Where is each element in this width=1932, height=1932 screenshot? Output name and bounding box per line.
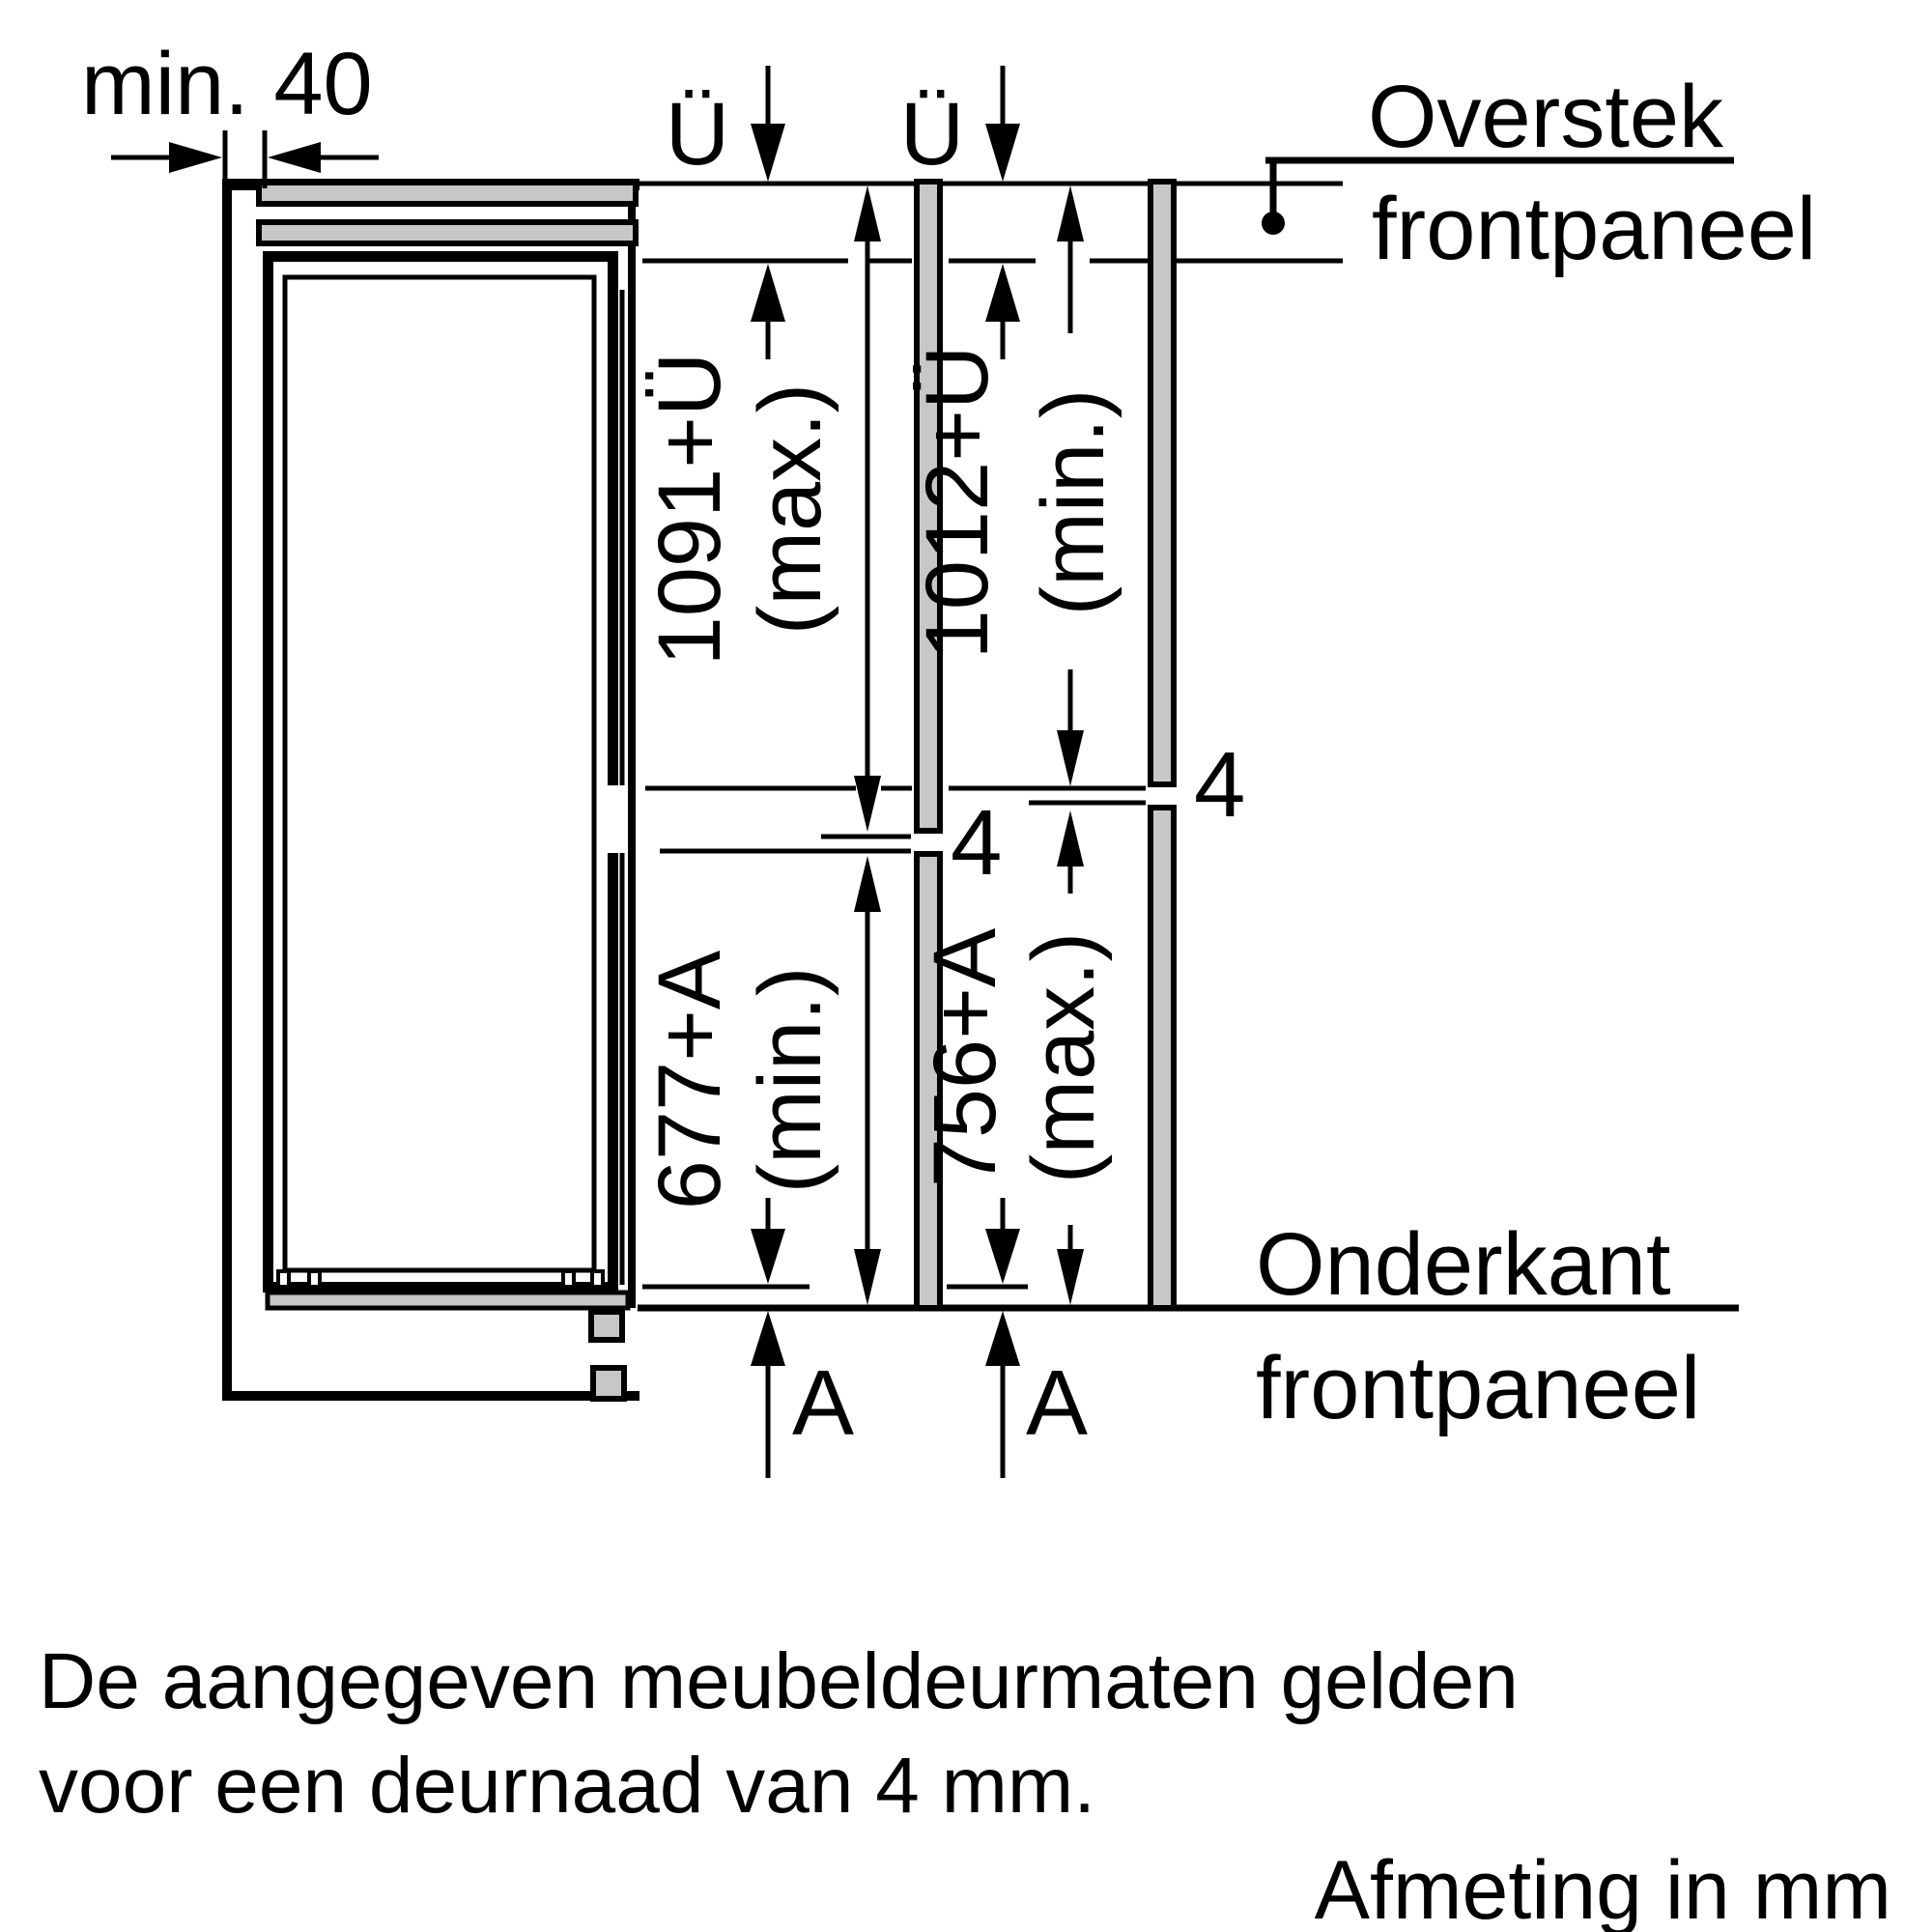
bottom-offset-symbol-2: A xyxy=(1026,1351,1088,1455)
arrow-down-icon xyxy=(854,1249,881,1305)
installation-diagram: min. 40 Ü Ü 1091+Ü (max.) 1012+Ü (min.) xyxy=(0,0,1932,1932)
arrow-up-icon xyxy=(985,1311,1020,1366)
vent-strip-lower xyxy=(259,222,636,243)
dimension-upper-left-column: 1091+Ü (max.) xyxy=(640,185,881,832)
dim-lower-right-qualifier: (max.) xyxy=(1014,932,1113,1184)
min-40-label: min. 40 xyxy=(81,35,373,133)
gap-label-right: 4 xyxy=(1194,733,1245,837)
dim-lower-right-value: 756+A xyxy=(916,927,1014,1187)
arrow-down-icon xyxy=(985,124,1020,182)
appliance-roller-mark xyxy=(592,1271,603,1287)
dim-upper-right-value: 1012+Ü xyxy=(908,346,1007,660)
dimension-overhang-left: Ü xyxy=(666,66,785,359)
appliance-foot-upper xyxy=(591,1312,622,1340)
appliance-roller-mark xyxy=(309,1271,320,1287)
appliance-roller-mark xyxy=(278,1271,289,1287)
arrow-up-icon xyxy=(751,264,785,322)
arrow-up-icon xyxy=(854,185,881,241)
arrow-up-icon xyxy=(1057,185,1084,241)
appliance-roller-mark xyxy=(563,1271,574,1287)
dim-lower-left-value: 677+A xyxy=(640,950,739,1209)
dim-upper-left-qualifier: (max.) xyxy=(741,384,839,636)
onderkant-line1: Onderkant xyxy=(1256,1215,1671,1314)
footnotes: De aangegeven meubeldeurmaten gelden voo… xyxy=(39,1637,1891,1932)
cabinet-floor xyxy=(222,1391,639,1401)
arrow-left-icon xyxy=(268,142,321,173)
appliance-foot-lower xyxy=(593,1368,624,1399)
appliance-body xyxy=(268,257,628,1400)
note-line1: De aangegeven meubeldeurmaten gelden xyxy=(39,1637,1519,1725)
appliance-outer-case xyxy=(269,257,613,1288)
arrow-down-icon xyxy=(854,776,881,832)
units-note: Afmeting in mm xyxy=(1315,1844,1891,1932)
dimension-min-40: min. 40 xyxy=(81,35,379,188)
arrow-down-icon xyxy=(751,1229,785,1284)
arrow-up-icon xyxy=(985,264,1020,322)
bottom-offset-symbol-1: A xyxy=(792,1351,854,1455)
leader-dot-icon xyxy=(1262,212,1285,235)
appliance-door-split-gap xyxy=(601,785,626,853)
dimension-bottom-offset-left: A xyxy=(751,1198,854,1478)
installation-diagram-page: min. 40 Ü Ü 1091+Ü (max.) 1012+Ü (min.) xyxy=(0,0,1932,1932)
arrow-down-icon xyxy=(985,1229,1020,1284)
dim-upper-right-qualifier: (min.) xyxy=(1024,388,1122,615)
arrow-down-icon xyxy=(1057,1249,1084,1305)
arrow-up-icon xyxy=(854,856,881,912)
arrow-down-icon xyxy=(751,124,785,182)
arrow-up-icon xyxy=(1057,810,1084,867)
arrow-right-icon xyxy=(169,142,222,173)
gap-label-left: 4 xyxy=(951,791,1002,895)
cabinet-left-wall xyxy=(222,182,232,1401)
overhang-symbol-1: Ü xyxy=(666,85,729,184)
overstek-line2: frontpaneel xyxy=(1372,180,1816,278)
label-overstek-frontpaneel: Overstek frontpaneel xyxy=(1262,68,1816,278)
onderkant-line2: frontpaneel xyxy=(1256,1339,1700,1437)
overstek-line1: Overstek xyxy=(1368,68,1724,166)
appliance-plinth xyxy=(268,1293,628,1308)
vent-strip-upper xyxy=(259,183,636,204)
cabinet-front-edge xyxy=(628,180,636,1308)
arrow-up-icon xyxy=(751,1311,785,1366)
dim-upper-left-value: 1091+Ü xyxy=(640,353,739,667)
overhang-symbol-2: Ü xyxy=(900,85,964,184)
dim-lower-left-qualifier: (min.) xyxy=(741,966,839,1193)
arrow-down-icon xyxy=(1057,730,1084,786)
panel2-bottom-door xyxy=(1151,808,1174,1308)
panel2-top-door xyxy=(1151,182,1174,784)
note-line2: voor een deurnaad van 4 mm. xyxy=(39,1742,1095,1830)
label-onderkant-frontpaneel: Onderkant frontpaneel xyxy=(1256,1215,1700,1437)
front-panel-variant-2 xyxy=(1151,182,1174,1308)
